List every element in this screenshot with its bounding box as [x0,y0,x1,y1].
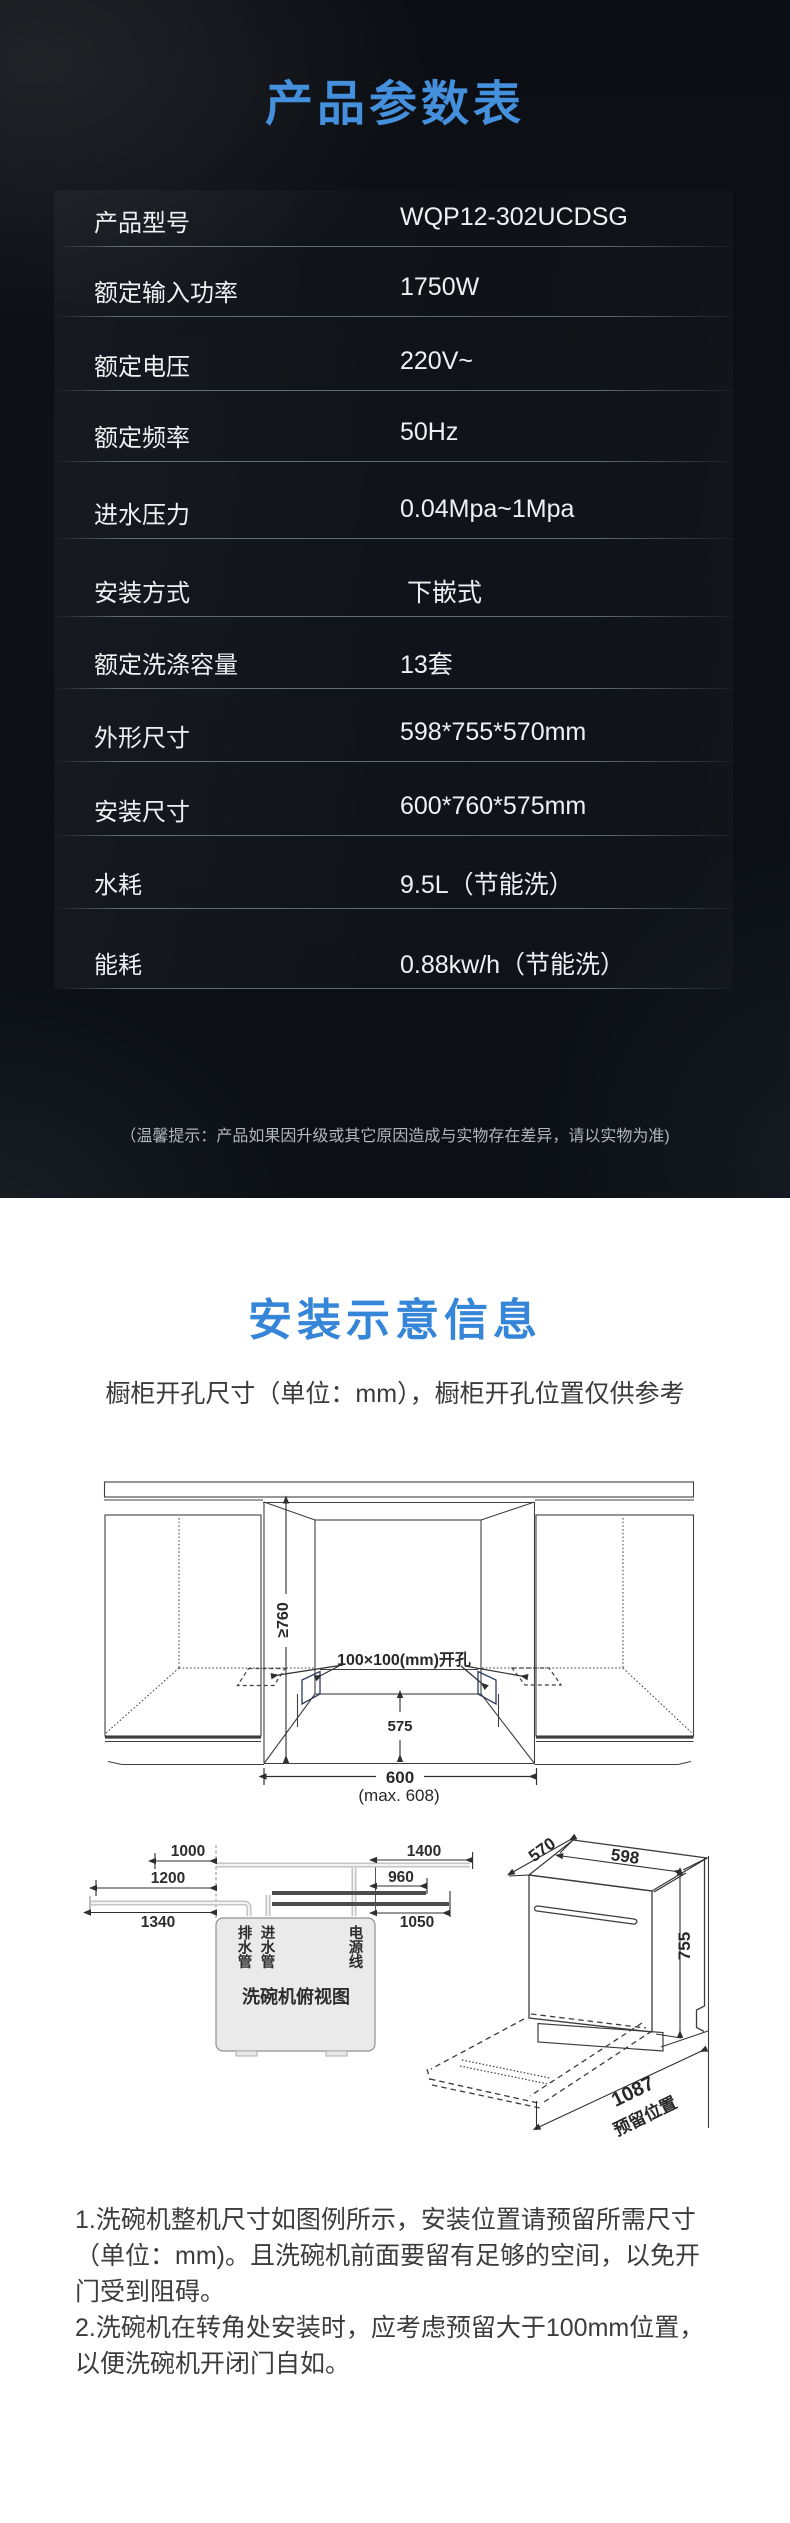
svg-text:600: 600 [386,1768,414,1787]
svg-text:755: 755 [675,1932,694,1960]
svg-text:排水管: 排水管 [238,1924,253,1971]
svg-text:570: 570 [525,1834,559,1866]
svg-text:(max. 608): (max. 608) [358,1786,439,1805]
svg-text:1340: 1340 [141,1914,175,1931]
svg-text:598: 598 [610,1845,641,1868]
svg-text:100×100(mm)开孔: 100×100(mm)开孔 [337,1651,471,1669]
svg-text:≥760: ≥760 [275,1602,292,1638]
svg-text:进水管: 进水管 [261,1925,276,1971]
svg-text:1050: 1050 [400,1914,434,1931]
svg-text:1200: 1200 [151,1870,185,1887]
svg-text:960: 960 [388,1869,414,1886]
svg-text:575: 575 [387,1718,412,1735]
svg-text:1400: 1400 [407,1843,441,1860]
svg-text:洗碗机俯视图: 洗碗机俯视图 [242,1986,350,2007]
svg-text:电源线: 电源线 [349,1924,364,1971]
svg-text:1000: 1000 [171,1843,205,1860]
